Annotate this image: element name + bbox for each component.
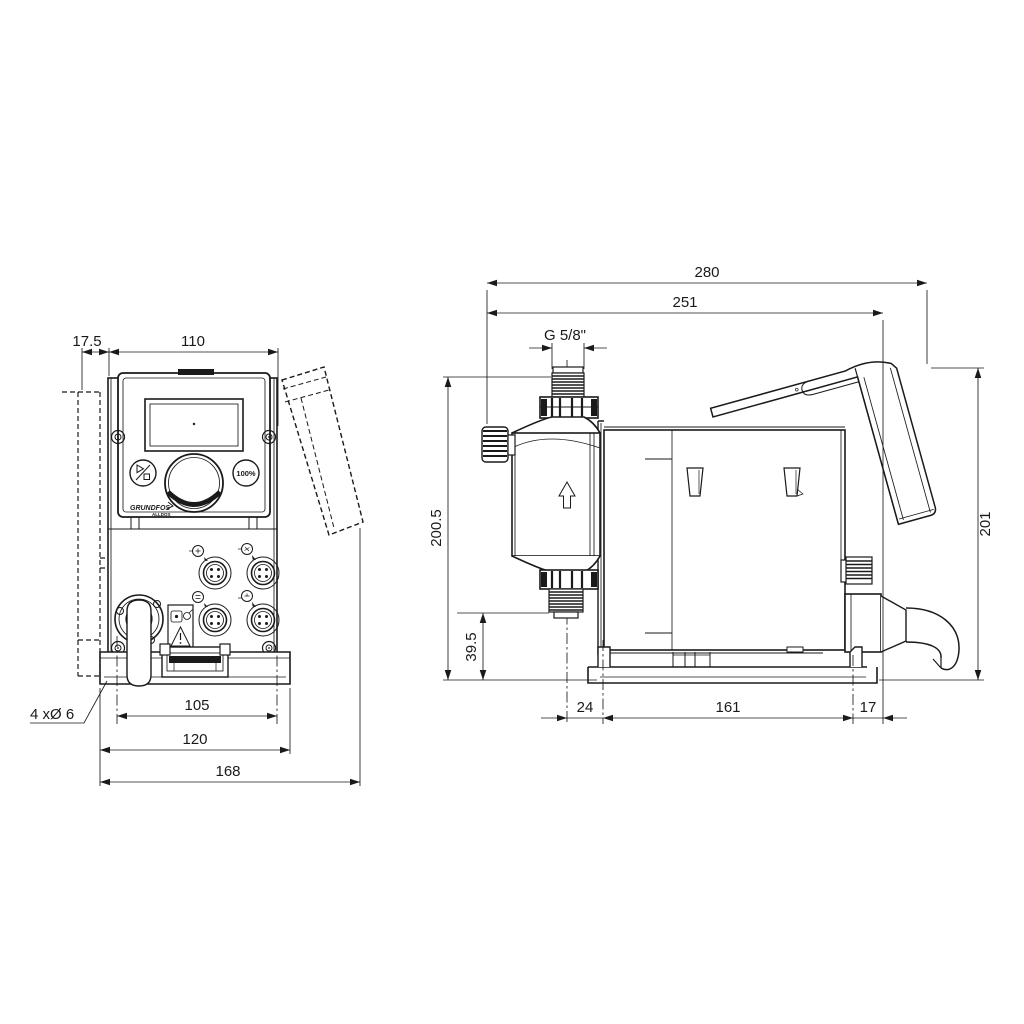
technical-drawing: 100% GRUNDFOS ALLDOS xyxy=(0,0,1024,1024)
dim-wall-offset: 17.5 xyxy=(72,333,109,352)
mounting-holes-label: 4 xØ 6 xyxy=(30,706,74,723)
dim-housing-width: 110 xyxy=(109,333,278,352)
mounting-base-side xyxy=(588,647,877,683)
dim-suction-valve-height: 39.5 xyxy=(457,613,549,680)
dosing-head xyxy=(482,360,600,724)
display xyxy=(145,399,243,451)
dim-overall-depth-label: 280 xyxy=(694,264,719,281)
dim-front-overhang-label: 24 xyxy=(577,699,594,716)
dim-rear-overhang: 17 xyxy=(853,699,907,718)
dim-base-width-label: 120 xyxy=(182,731,207,748)
discharge-valve-connection xyxy=(540,367,598,418)
power-cable-side xyxy=(906,608,959,670)
panel-top-tab xyxy=(178,369,214,375)
suction-valve-connection xyxy=(540,570,598,618)
front-view: 100% GRUNDFOS ALLDOS xyxy=(30,333,363,786)
deaeration-valve-knob xyxy=(482,427,515,462)
dim-suction-valve-height-label: 39.5 xyxy=(463,632,480,661)
dim-hole-spacing-side-label: 161 xyxy=(715,699,740,716)
dim-hole-spacing-front: 105 xyxy=(117,697,277,716)
brand-logo-text: GRUNDFOS xyxy=(130,505,170,512)
dim-connection-thread-label: G 5/8" xyxy=(544,327,586,344)
dim-front-overhang: 24 xyxy=(541,699,603,718)
head-top-taper xyxy=(512,417,600,433)
head-body xyxy=(512,433,600,556)
adjustment-knob[interactable] xyxy=(165,454,223,512)
pump-housing-side xyxy=(598,421,845,655)
capacity-100-label: 100% xyxy=(236,469,256,478)
dim-overall-width-label: 168 xyxy=(215,763,240,780)
side-view: 280 251 G 5/8" 200.5 39.5 xyxy=(428,264,994,724)
dim-hole-spacing-front-label: 105 xyxy=(184,697,209,714)
start-stop-button[interactable] xyxy=(130,460,156,486)
dim-connection-thread: G 5/8" xyxy=(529,327,607,369)
dim-rear-overhang-label: 17 xyxy=(860,699,877,716)
dim-depth-to-mounting-label: 251 xyxy=(672,294,697,311)
dim-overall-height-label: 201 xyxy=(977,511,994,536)
wall-plate xyxy=(62,392,108,676)
dim-hole-spacing-side: 161 xyxy=(603,699,853,718)
dim-wall-offset-label: 17.5 xyxy=(72,333,101,350)
capacity-100-button[interactable]: 100% xyxy=(233,460,259,486)
control-panel: 100% GRUNDFOS ALLDOS xyxy=(118,369,270,517)
cable-strain-relief xyxy=(881,596,906,652)
mounting-hook xyxy=(687,468,703,496)
brand-logo-subtext: ALLDOS xyxy=(152,512,171,517)
drawing-svg: 100% GRUNDFOS ALLDOS xyxy=(0,0,1024,1024)
terminal-cover-open-front xyxy=(282,367,363,535)
mounting-holes-callout: 4 xØ 6 xyxy=(30,681,107,723)
warning-label xyxy=(168,605,193,650)
power-cable-front xyxy=(127,600,151,686)
dim-housing-width-label: 110 xyxy=(181,333,205,350)
dim-height-to-discharge-label: 200.5 xyxy=(428,509,445,547)
